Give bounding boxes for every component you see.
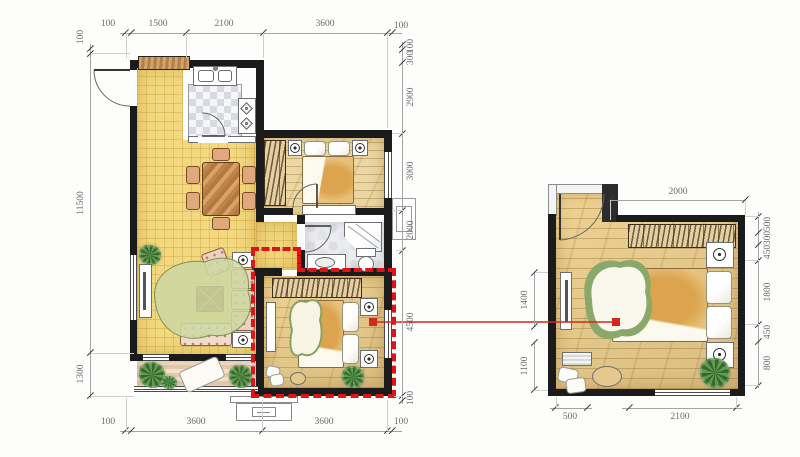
detail-wall-left-gray [548, 184, 557, 216]
dim-label: 100 [101, 417, 115, 427]
dining-chair [242, 166, 256, 184]
pillow [342, 302, 359, 332]
dining-chair [212, 148, 230, 161]
dim-line-right [402, 42, 403, 404]
balcony-slider-a [143, 354, 169, 361]
dim-label: 500 [563, 412, 577, 422]
lamp-icon [355, 143, 365, 153]
plant-icon [161, 376, 177, 389]
dim-ext [394, 396, 403, 397]
bedroom1-window [384, 152, 392, 198]
floor-plan-canvas: 100 1500 2100 3600 100 100 3600 3600 100… [0, 0, 800, 457]
pillow [342, 334, 359, 364]
detail-stool [592, 366, 622, 387]
dim-ext [745, 260, 759, 261]
dim-label: 450 [763, 325, 773, 339]
plant-icon [229, 365, 252, 388]
dim-label: 300 [406, 51, 416, 65]
dim-label: 1100 [520, 357, 530, 376]
dim-label: 3600 [187, 417, 206, 427]
lamp-icon [364, 354, 374, 364]
dim-ext [91, 53, 130, 54]
faucet [213, 66, 218, 71]
dim-ext [126, 398, 127, 431]
bedroom1-dresser [302, 205, 356, 215]
dim-label: 4500 [406, 313, 416, 332]
dim-label: 100 [394, 21, 408, 31]
dim-label: 450 [763, 245, 773, 259]
magazine-stack [562, 352, 592, 366]
dim-line-left [90, 44, 91, 398]
dim-label: 3600 [315, 417, 334, 427]
lamp-icon [713, 248, 726, 261]
tv-icon [143, 272, 146, 310]
coffee-table [196, 286, 224, 312]
detail-wall-right [738, 215, 745, 396]
bedroom2-window [384, 310, 392, 358]
dim-label: 11500 [76, 191, 86, 214]
plant-icon [342, 366, 364, 388]
wall-divider-a [256, 208, 293, 215]
detail-dim-line-top [610, 200, 746, 201]
sink-bowl-right [218, 70, 232, 82]
dim-ext [392, 210, 403, 211]
stool [290, 372, 306, 385]
detail-dim-line-right [758, 212, 759, 388]
dim-ext [387, 33, 388, 128]
wall-left-b [130, 106, 137, 255]
wall-left-a [130, 60, 137, 70]
dim-tick [531, 323, 538, 330]
kitchen-door-opening [198, 136, 228, 143]
dim-ext [736, 397, 737, 408]
dim-ext [263, 33, 264, 58]
plant-icon [700, 358, 730, 388]
dining-table [202, 162, 240, 216]
dim-label: 1800 [763, 283, 773, 302]
balcony-slider-b [226, 354, 252, 361]
detail-bed [612, 268, 708, 342]
dim-ext [745, 200, 746, 215]
dim-ext [91, 396, 134, 397]
ac-unit-icon [252, 407, 276, 417]
dim-ext [262, 400, 263, 431]
dim-label: 2900 [406, 88, 416, 107]
bedroom1-bed [302, 156, 354, 204]
bedroom2-bed [298, 300, 344, 368]
dining-chair [186, 166, 200, 184]
highlight-box-left [251, 248, 255, 398]
bedroom2-wardrobe [272, 278, 362, 298]
lamp-icon [238, 255, 248, 265]
dim-ext [387, 400, 388, 431]
dim-ext [535, 390, 548, 391]
dim-ext [91, 353, 134, 354]
dim-ext [745, 385, 759, 386]
dim-label: 2100 [671, 412, 690, 422]
tv-icon [565, 280, 568, 322]
dim-ext [126, 33, 127, 58]
dim-label: 1400 [520, 291, 530, 310]
kitchen-floor [188, 84, 242, 138]
sink-bowl-left [198, 70, 214, 82]
wall-bath-door-jamb-a [297, 215, 305, 224]
lamp-icon [290, 143, 300, 153]
dim-label: 2100 [215, 19, 234, 29]
detail-dim-line-bottom-b [622, 408, 742, 409]
dim-ext [396, 250, 403, 251]
dim-ext [392, 133, 403, 134]
dim-ext [535, 272, 548, 273]
dim-label: 2000 [406, 221, 416, 240]
dining-chair [186, 192, 200, 210]
dim-label: 500 [763, 217, 773, 231]
dim-label: 100 [76, 30, 86, 44]
pillow [328, 141, 350, 156]
dim-ext [745, 324, 759, 325]
pillow [706, 271, 732, 304]
vanity-sink [315, 257, 335, 268]
bedroom1-wardrobe [264, 140, 286, 206]
dim-label: 800 [763, 356, 773, 370]
dining-chair [212, 217, 230, 230]
dim-label: 300 [763, 231, 773, 245]
highlight-box-bottom [251, 394, 396, 398]
detail-wall-left [548, 214, 556, 396]
highlight-box-top-a [251, 247, 301, 251]
plant-icon [139, 245, 161, 265]
wall-bedroom2-left [256, 268, 264, 390]
dim-label: 100 [394, 417, 408, 427]
bench-sofa [180, 323, 232, 346]
pillow [706, 306, 732, 339]
detail-wall-top-gray [548, 184, 610, 194]
papers [565, 377, 587, 395]
lamp-icon [364, 302, 374, 312]
bedroom2-tv-console [266, 302, 276, 352]
dim-label: 1500 [149, 19, 168, 29]
dim-label: 2000 [669, 187, 688, 197]
dim-ext [745, 216, 759, 217]
lamp-icon [238, 335, 248, 345]
detail-dim-line-left-b [534, 342, 535, 390]
pillow [304, 141, 326, 156]
dim-label: 3000 [406, 162, 416, 181]
dining-chair [242, 192, 256, 210]
dim-label: 3600 [316, 19, 335, 29]
detail-dim-line-left-a [534, 272, 535, 327]
detail-wall-top [616, 215, 745, 222]
dim-ext [556, 397, 557, 408]
living-window [130, 255, 137, 320]
dim-label: 100 [406, 391, 416, 405]
detail-window [655, 389, 730, 396]
wall-kitchen-right [256, 60, 264, 222]
entry-shoe-cabinet [138, 56, 190, 70]
dim-label: 100 [101, 19, 115, 29]
wall-bedroom1-top [256, 130, 392, 138]
dim-ext [186, 33, 187, 58]
dim-ext [610, 200, 611, 220]
highlight-box-right [392, 268, 396, 398]
entry-door-arc [94, 70, 130, 106]
hallway-floor [256, 222, 297, 270]
wall-right-a [384, 130, 392, 152]
highlight-box-top-b [297, 268, 396, 272]
dim-label: 1300 [76, 365, 86, 384]
